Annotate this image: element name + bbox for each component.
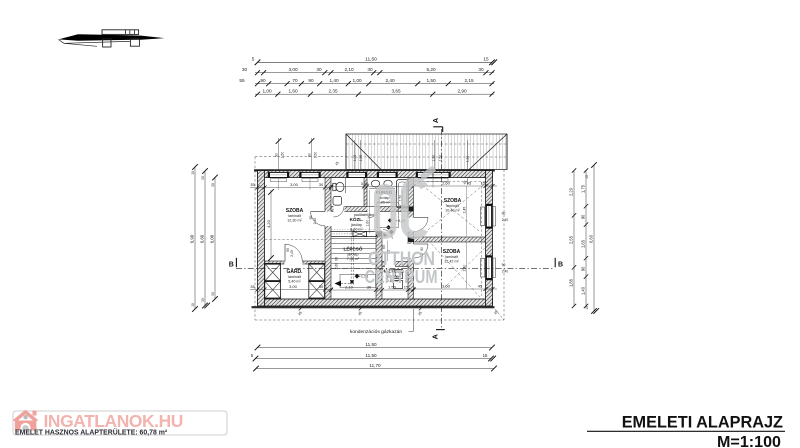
svg-text:2,40: 2,40 xyxy=(463,265,467,272)
svg-text:35: 35 xyxy=(250,284,255,289)
svg-text:1,65: 1,65 xyxy=(581,239,586,248)
svg-text:11,70: 11,70 xyxy=(369,363,381,368)
svg-text:B: B xyxy=(558,261,563,268)
svg-text:6,00: 6,00 xyxy=(209,234,214,243)
svg-text:1,00: 1,00 xyxy=(262,89,272,94)
svg-text:1,50: 1,50 xyxy=(281,152,285,159)
svg-text:6,90: 6,90 xyxy=(189,234,194,243)
svg-text:30: 30 xyxy=(478,67,484,72)
svg-text:6,60: 6,60 xyxy=(589,234,594,243)
svg-text:1,40: 1,40 xyxy=(329,78,339,83)
svg-text:2,40: 2,40 xyxy=(502,270,509,274)
svg-text:1,85: 1,85 xyxy=(569,278,574,287)
svg-text:A: A xyxy=(431,118,440,123)
svg-text:1,50: 1,50 xyxy=(314,152,318,159)
svg-text:11,50: 11,50 xyxy=(365,57,377,63)
svg-text:2,90: 2,90 xyxy=(457,89,467,94)
svg-text:3,00: 3,00 xyxy=(289,284,298,289)
svg-text:11,50: 11,50 xyxy=(365,342,377,347)
svg-text:70: 70 xyxy=(292,78,298,83)
svg-text:5,40 m²: 5,40 m² xyxy=(288,279,301,283)
svg-text:3,00: 3,00 xyxy=(290,182,299,187)
svg-text:2,10: 2,10 xyxy=(345,285,354,290)
svg-text:6,60: 6,60 xyxy=(199,234,204,243)
svg-text:90: 90 xyxy=(581,214,586,219)
svg-text:1,05: 1,05 xyxy=(353,155,357,162)
svg-text:15: 15 xyxy=(585,306,589,310)
svg-text:2,40: 2,40 xyxy=(385,78,395,83)
svg-text:kondenzációs gázkazán: kondenzációs gázkazán xyxy=(350,329,402,335)
svg-text:1,00: 1,00 xyxy=(352,78,362,83)
svg-text:30: 30 xyxy=(367,67,373,72)
svg-text:30: 30 xyxy=(201,298,205,302)
svg-text:30: 30 xyxy=(211,292,215,296)
svg-text:15: 15 xyxy=(483,57,489,62)
svg-text:2,60: 2,60 xyxy=(442,181,451,186)
svg-text:2,40: 2,40 xyxy=(313,218,317,225)
svg-text:90: 90 xyxy=(260,78,266,83)
svg-text:15: 15 xyxy=(585,175,589,179)
svg-text:3,65: 3,65 xyxy=(391,89,401,94)
svg-text:2,15: 2,15 xyxy=(464,78,474,83)
svg-text:2,20: 2,20 xyxy=(569,187,574,196)
svg-text:2,10: 2,10 xyxy=(344,67,354,72)
svg-text:90: 90 xyxy=(581,266,586,271)
svg-text:3,90: 3,90 xyxy=(361,181,370,186)
svg-text:3,60: 3,60 xyxy=(442,284,451,289)
svg-text:30: 30 xyxy=(242,67,248,72)
svg-text:90: 90 xyxy=(335,257,339,261)
svg-text:90: 90 xyxy=(308,78,314,83)
svg-text:11,50: 11,50 xyxy=(365,353,377,358)
svg-text:30: 30 xyxy=(316,67,322,72)
svg-text:15: 15 xyxy=(191,171,195,175)
svg-text:1,50: 1,50 xyxy=(439,155,443,162)
svg-text:EMELET HASZNOS ALAPTERÜLETE: 6: EMELET HASZNOS ALAPTERÜLETE: 60,78 m² xyxy=(15,428,168,437)
svg-text:LÉPCSŐ: LÉPCSŐ xyxy=(344,245,363,252)
svg-text:6,30 m²: 6,30 m² xyxy=(350,227,363,231)
svg-text:35: 35 xyxy=(250,182,255,187)
svg-text:3,00: 3,00 xyxy=(288,67,298,72)
svg-text:12,30 m²: 12,30 m² xyxy=(287,218,302,222)
svg-text:30: 30 xyxy=(319,182,324,187)
svg-text:55: 55 xyxy=(239,78,245,83)
svg-text:15: 15 xyxy=(191,303,195,307)
svg-text:2,40: 2,40 xyxy=(290,250,294,257)
svg-text:30: 30 xyxy=(319,284,324,289)
svg-text:2,45: 2,45 xyxy=(463,207,467,214)
svg-text:2,35: 2,35 xyxy=(328,89,338,94)
svg-text:10,40 m²: 10,40 m² xyxy=(445,208,460,212)
svg-text:12,42 m²: 12,42 m² xyxy=(444,259,459,263)
svg-text:1,55: 1,55 xyxy=(359,155,363,162)
svg-text:padlásfeljáró: padlásfeljáró xyxy=(354,213,374,217)
svg-text:1,10: 1,10 xyxy=(466,156,470,163)
svg-text:A: A xyxy=(431,334,440,339)
svg-text:1,50: 1,50 xyxy=(432,155,436,162)
svg-text:INGATLANOK.HU: INGATLANOK.HU xyxy=(44,411,183,431)
svg-text:1,50: 1,50 xyxy=(426,78,436,83)
svg-text:4,20: 4,20 xyxy=(266,219,271,228)
svg-text:B: B xyxy=(229,261,234,268)
svg-text:1,75: 1,75 xyxy=(581,184,586,193)
svg-text:90: 90 xyxy=(308,153,312,157)
svg-text:5: 5 xyxy=(252,57,255,62)
svg-text:1,60: 1,60 xyxy=(288,89,298,94)
svg-text:M=1:100: M=1:100 xyxy=(717,433,781,448)
svg-text:15: 15 xyxy=(483,353,488,358)
svg-text:2,40: 2,40 xyxy=(502,218,509,222)
svg-text:90: 90 xyxy=(275,153,279,157)
svg-text:45: 45 xyxy=(467,181,472,186)
svg-text:5,20: 5,20 xyxy=(426,67,436,72)
svg-text:EMELETI ALAPRAJZ: EMELETI ALAPRAJZ xyxy=(622,413,783,431)
svg-text:CENTRUM: CENTRUM xyxy=(365,267,438,287)
svg-text:15: 15 xyxy=(481,181,486,186)
svg-text:1,40: 1,40 xyxy=(581,286,586,295)
svg-text:1,60: 1,60 xyxy=(366,220,370,227)
svg-text:45: 45 xyxy=(478,284,483,289)
svg-text:30: 30 xyxy=(211,183,215,187)
svg-text:7,48 m²: 7,48 m² xyxy=(347,257,360,261)
svg-text:2,55: 2,55 xyxy=(569,235,574,244)
svg-text:30: 30 xyxy=(201,176,205,180)
svg-text:90: 90 xyxy=(502,212,506,216)
svg-text:90: 90 xyxy=(502,263,506,267)
